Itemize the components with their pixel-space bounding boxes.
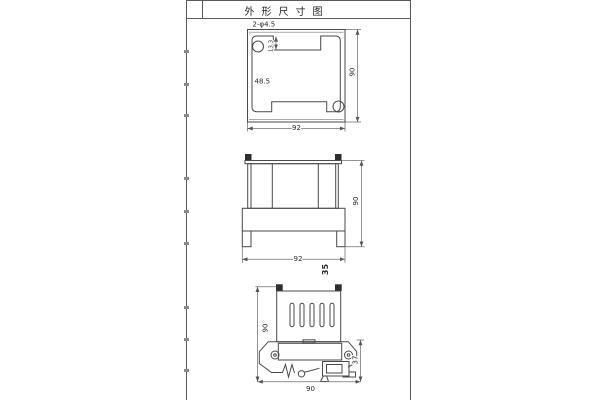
dim-top-step: 13.3	[269, 39, 275, 52]
vent-slot	[330, 303, 334, 326]
screw-head-left	[245, 154, 252, 161]
dim-front-depth: 35	[321, 264, 330, 276]
vent-slot	[320, 303, 324, 326]
side-view: 90 37 90	[256, 284, 365, 393]
base-screw-right-center	[347, 354, 350, 357]
front-leg-right	[337, 231, 345, 247]
dim-front-height: 90	[352, 197, 360, 206]
front-base-band	[242, 208, 345, 231]
dim-side-height: 90	[262, 324, 270, 333]
front-leg-left	[242, 231, 251, 247]
dim-front-width: 92	[294, 255, 303, 263]
base-screw-left-center	[274, 354, 277, 357]
screw-head-right	[335, 154, 342, 161]
dim-side-width: 90	[306, 385, 315, 393]
vent-slot	[290, 303, 294, 326]
drawing-sheet: 外形尺寸图 2-φ4.5 13.3 48.5 92	[0, 0, 600, 400]
dimension-drawing: 2-φ4.5 13.3 48.5 92 90	[0, 0, 600, 400]
dim-top-height: 90	[349, 68, 357, 77]
vent-slot	[300, 303, 304, 326]
screw-head-right	[335, 284, 342, 291]
top-view: 2-φ4.5 13.3 48.5 92 90	[248, 21, 362, 133]
dim-top-inner: 48.5	[255, 78, 271, 86]
hole-count-label: 2-φ4.5	[253, 21, 276, 29]
mount-hole-top-left	[253, 41, 264, 52]
clip-stem	[305, 372, 308, 373]
clip-hook-circle	[298, 371, 304, 377]
front-view: 92 35 90	[242, 154, 364, 275]
clip-arm	[308, 368, 320, 371]
rail-hook	[321, 376, 329, 382]
side-upper-body	[277, 291, 341, 342]
dim-top-width: 92	[292, 124, 301, 132]
terminal-block	[278, 343, 341, 360]
din-rail-inner	[327, 365, 343, 374]
vent-slot	[310, 303, 314, 326]
dim-side-rail: 37	[352, 356, 360, 365]
front-upper-body	[248, 164, 339, 209]
screw-head-left	[276, 284, 283, 291]
top-view-cavity	[252, 36, 340, 112]
base-screw-left	[271, 351, 279, 359]
